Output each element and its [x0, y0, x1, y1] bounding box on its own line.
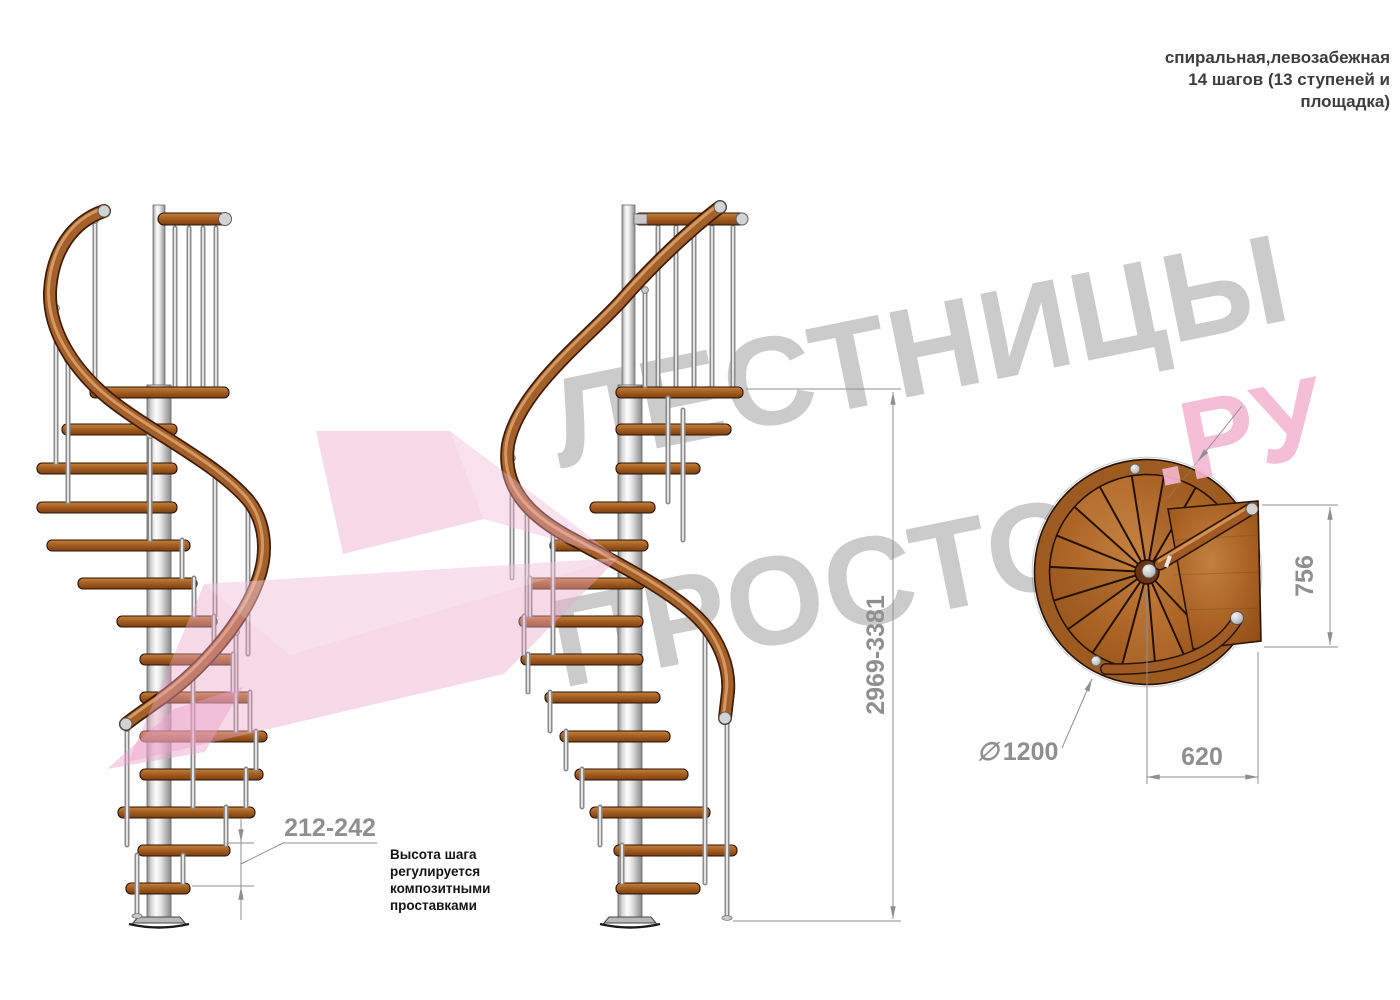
pole-base — [604, 917, 656, 923]
floor-line — [129, 924, 189, 928]
annotation-line-2: регулируется — [390, 863, 490, 880]
handrail-end-cap — [736, 213, 748, 225]
handrail-cap-bottom — [120, 718, 132, 730]
dimension-step-height: 212-242 — [192, 814, 377, 920]
drawing-title-note: спиральная,левозабежная 14 шагов (13 сту… — [1165, 47, 1390, 113]
center-ball — [1142, 564, 1156, 578]
note-line-2: 14 шагов (13 ступеней и — [1165, 69, 1390, 91]
side-view-staircase-left — [37, 205, 267, 928]
handrail-top — [158, 213, 228, 225]
baluster-ball — [1091, 656, 1101, 666]
handrail-end-cap — [219, 213, 232, 226]
watermark-pink-arrow — [107, 431, 618, 769]
annotation-line-4: проставками — [390, 897, 490, 914]
dimension-diameter: ∅1200 — [977, 679, 1092, 766]
landing-step — [616, 387, 743, 398]
watermark-word-ru: .РУ — [1138, 353, 1337, 511]
platform-width-label: 620 — [1181, 743, 1223, 771]
handrail-connector — [634, 214, 647, 224]
dimension-platform-depth: 756 — [1262, 505, 1338, 647]
baluster-ball — [1130, 464, 1140, 474]
annotation-line-3: композитными — [390, 880, 490, 897]
total-height-label: 2969-3381 — [862, 595, 890, 715]
note-line-3: площадка) — [1165, 91, 1390, 113]
step-height-label: 212-242 — [284, 814, 376, 842]
floor-line — [600, 924, 660, 928]
railing-post — [153, 205, 165, 390]
plan-handrail-cap — [1246, 503, 1258, 515]
step-height-annotation: Высота шага регулируется композитными пр… — [390, 846, 490, 914]
platform-depth-label: 756 — [1291, 555, 1319, 597]
annotation-line-1: Высота шага — [390, 846, 490, 863]
handrail-cap-bottom — [719, 712, 731, 724]
staircase-drawing: ЛЕСТНИЦЫ ПРОСТО — [0, 0, 1400, 1000]
top-railing — [158, 213, 232, 387]
handrail-cap-top — [98, 205, 110, 217]
baluster-ball — [1231, 612, 1244, 625]
technical-drawing-canvas: ЛЕСТНИЦЫ ПРОСТО — [0, 0, 1400, 1000]
note-line-1: спиральная,левозабежная — [1165, 47, 1390, 69]
diameter-label: ∅1200 — [977, 738, 1058, 766]
handrail-cap-top — [714, 201, 726, 213]
